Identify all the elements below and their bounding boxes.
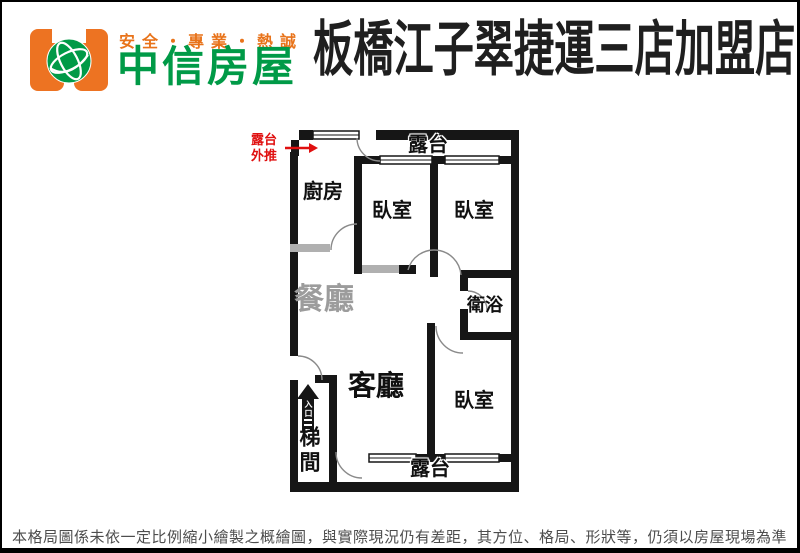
gray-partitions-layer bbox=[290, 244, 399, 273]
room-label-balcony-bottom: 露台 bbox=[410, 459, 450, 479]
entrance-label: 入口 bbox=[304, 400, 312, 418]
room-label-stairwell: 梯間 bbox=[298, 426, 319, 476]
brand-name: 中信房屋 bbox=[117, 46, 297, 88]
room-label-bedroom-top-left: 臥室 bbox=[372, 201, 412, 221]
room-label-balcony-top: 露台 bbox=[408, 135, 448, 155]
balcony-pushout-arrow-icon bbox=[285, 143, 318, 153]
room-label-bedroom-bottom-right: 臥室 bbox=[454, 391, 494, 411]
globe-icon bbox=[47, 39, 91, 83]
room-label-bedroom-top-right: 臥室 bbox=[454, 201, 494, 221]
room-label-living: 客廳 bbox=[348, 372, 404, 400]
store-title: 板橋江子翠捷運三店加盟店 bbox=[313, 20, 795, 80]
room-label-bathroom: 衛浴 bbox=[467, 296, 503, 314]
room-label-kitchen: 廚房 bbox=[303, 182, 343, 202]
balcony-pushout-label: 露台 外推 bbox=[251, 132, 277, 165]
room-label-dining: 餐廳 bbox=[294, 285, 354, 315]
flyer-page: 安全・專業・熱誠 中信房屋 板橋江子翠捷運三店加盟店 bbox=[0, 0, 800, 553]
disclaimer-text: 本格局圖係未依一定比例縮小繪製之概繪圖，與實際現況仍有差距，其方位、格局、形狀等… bbox=[2, 526, 797, 547]
brand-logo-icon bbox=[29, 26, 109, 96]
